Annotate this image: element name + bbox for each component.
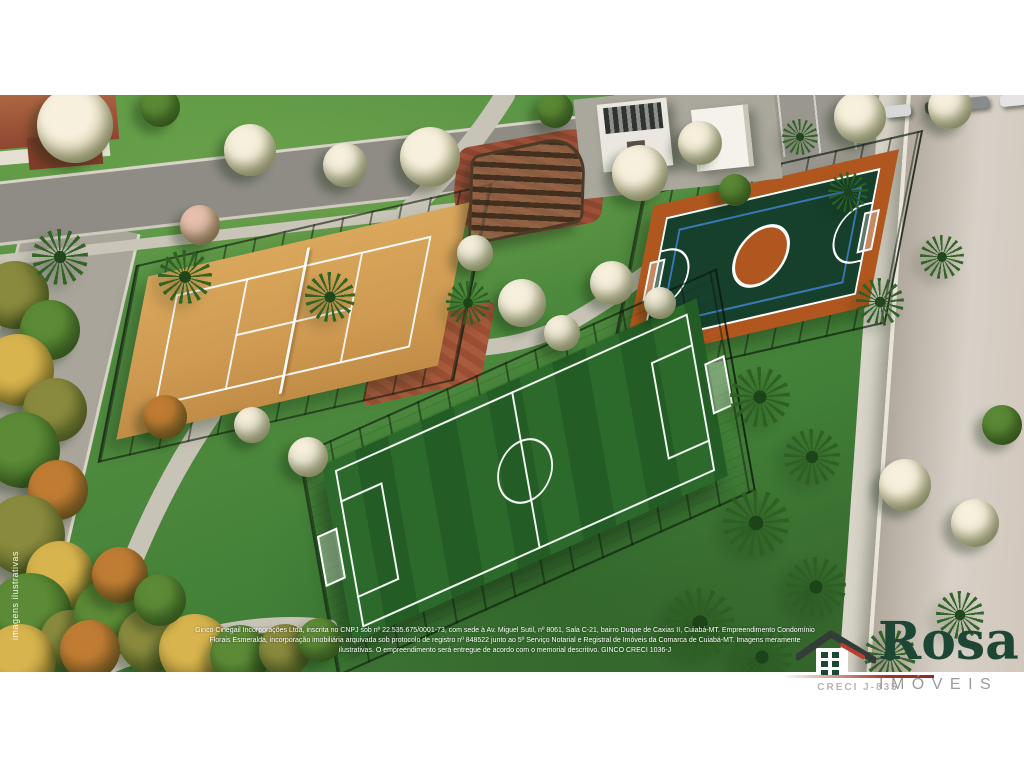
palm-tree bbox=[305, 272, 355, 322]
tree bbox=[719, 174, 751, 206]
palm-tree bbox=[782, 119, 818, 155]
blossom-tree bbox=[951, 499, 999, 547]
blossom-tree bbox=[234, 407, 270, 443]
palm-tree bbox=[828, 172, 868, 212]
palm-tree bbox=[32, 229, 88, 285]
palm-tree bbox=[723, 490, 789, 556]
rosa-imoveis-logo: CRECI J-835 Rosa IMÓVEIS bbox=[782, 630, 1020, 706]
watermark-vertical-text: imagens ilustrativas bbox=[10, 551, 20, 640]
blossom-tree bbox=[678, 121, 722, 165]
page: imagens ilustrativas Ginco Cinegail Inco… bbox=[0, 0, 1024, 768]
tree bbox=[143, 395, 187, 439]
brand-name: Rosa bbox=[878, 614, 1019, 670]
blossom-tree bbox=[224, 124, 276, 176]
palm-tree bbox=[446, 281, 490, 325]
blossom-tree bbox=[879, 459, 931, 511]
blossom-tree bbox=[644, 287, 676, 319]
palm-tree bbox=[920, 235, 964, 279]
house-icon bbox=[796, 630, 876, 676]
blossom-tree bbox=[590, 261, 634, 305]
palm-tree bbox=[784, 429, 840, 485]
aerial-render-scene bbox=[0, 95, 1024, 672]
blossom-tree bbox=[544, 315, 580, 351]
blossom-tree bbox=[180, 205, 220, 245]
palm-tree bbox=[158, 250, 212, 304]
tree bbox=[982, 405, 1022, 445]
blossom-tree bbox=[498, 279, 546, 327]
blossom-tree bbox=[612, 145, 668, 201]
palm-tree bbox=[856, 278, 904, 326]
brand-subtitle: IMÓVEIS bbox=[879, 676, 998, 694]
blossom-tree bbox=[400, 127, 460, 187]
tree bbox=[134, 574, 186, 626]
blossom-tree bbox=[323, 143, 367, 187]
palm-tree bbox=[786, 557, 846, 617]
blossom-tree bbox=[288, 437, 328, 477]
blossom-tree bbox=[457, 235, 493, 271]
palm-tree bbox=[730, 367, 790, 427]
